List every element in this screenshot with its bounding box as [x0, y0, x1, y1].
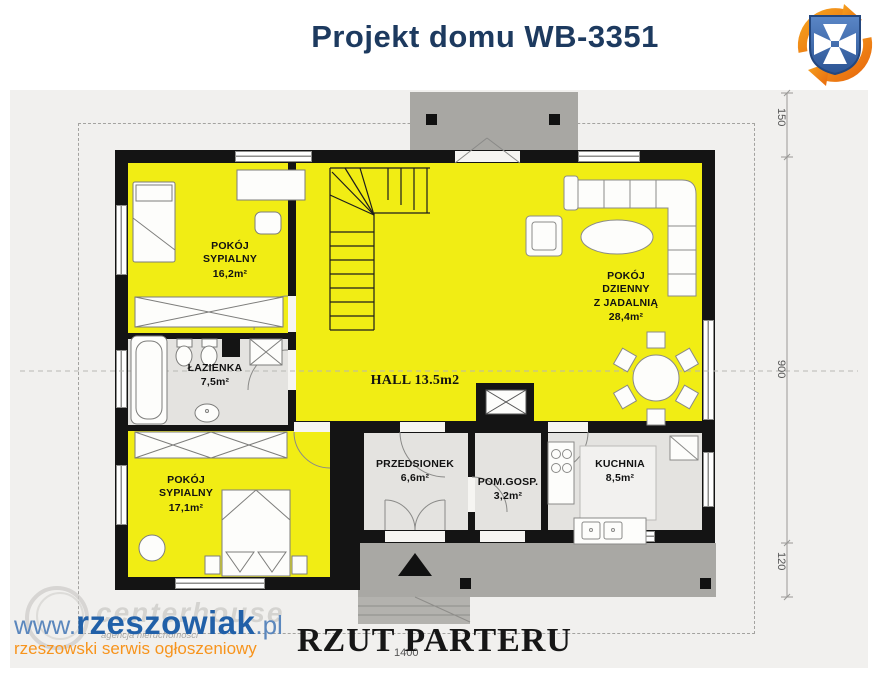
watermark-brand: rzeszowiak — [76, 604, 255, 642]
room-name: KUCHNIA — [560, 458, 680, 471]
room-name: SYPIALNY — [170, 253, 290, 266]
window-bedroom2-bottom — [175, 578, 265, 589]
room-area: 17,1m² — [126, 502, 246, 515]
floor-plan-page: POKÓJ SYPIALNY 16,2m² ŁAZIENKA 7,5m² POK… — [0, 0, 878, 675]
room-area: 16,2m² — [170, 268, 290, 281]
door-kitchen — [548, 422, 588, 432]
dimension-right-900: 900 — [775, 360, 787, 378]
terrace-door-opening — [455, 151, 520, 162]
room-label-kitchen: KUCHNIA 8,5m² — [560, 458, 680, 486]
room-name: POKÓJ — [566, 270, 686, 283]
window-living-right — [703, 320, 714, 420]
watermark-url: www. rzeszowiak .pl — [14, 604, 283, 642]
room-label-bedroom-2: POKÓJ SYPIALNY 17,1m² — [126, 474, 246, 515]
window-kitchen-right — [703, 452, 714, 507]
window-living-top — [578, 151, 640, 162]
terrace-top — [410, 92, 578, 156]
room-name: POKÓJ — [170, 240, 290, 253]
room-name: DZIENNY — [566, 283, 686, 296]
room-name: HALL 13.5m2 — [355, 372, 475, 390]
window-bedroom1-top — [235, 151, 312, 162]
page-title: Projekt domu WB-3351 — [0, 19, 878, 55]
chimney-block — [476, 383, 534, 423]
plan-title: RZUT PARTERU — [297, 622, 572, 660]
door-vestibule-hall — [400, 422, 445, 432]
terrace-entrance — [358, 543, 716, 597]
room-name: Z JADALNIĄ — [566, 297, 686, 310]
watermark-tagline: rzeszowski serwis ogłoszeniowy — [14, 639, 257, 659]
door-bathroom — [288, 350, 296, 390]
utility-door-opening — [480, 531, 525, 542]
rzeszow-crest-logo — [794, 2, 876, 88]
window-bathroom-left — [116, 350, 127, 408]
room-area: 7,5m² — [155, 376, 275, 389]
room-label-bedroom-1: POKÓJ SYPIALNY 16,2m² — [170, 240, 290, 281]
window-bedroom1-left — [116, 205, 127, 275]
room-label-bathroom: ŁAZIENKA 7,5m² — [155, 362, 275, 390]
dimension-right-120: 120 — [775, 552, 787, 570]
door-bedroom1 — [288, 296, 296, 332]
room-name: POM.GOSP. — [448, 476, 568, 489]
watermark-url-prefix: www. — [14, 610, 76, 641]
watermark-url-suffix: .pl — [255, 610, 282, 641]
entrance-steps — [358, 597, 470, 624]
room-label-hall: HALL 13.5m2 — [355, 372, 475, 390]
crest-logo-icon — [794, 2, 876, 88]
bathroom-wall-stub — [222, 333, 240, 357]
room-label-utility: POM.GOSP. 3,2m² — [448, 476, 568, 504]
room-name: ŁAZIENKA — [155, 362, 275, 375]
room-name: PRZEDSIONEK — [355, 458, 475, 471]
room-area: 8,5m² — [560, 472, 680, 485]
room-name: SYPIALNY — [126, 487, 246, 500]
room-name: POKÓJ — [126, 474, 246, 487]
door-bedroom2 — [294, 422, 330, 432]
room-area: 28,4m² — [566, 311, 686, 324]
room-label-living-dining: POKÓJ DZIENNY Z JADALNIĄ 28,4m² — [566, 270, 686, 325]
room-area: 3,2m² — [448, 490, 568, 503]
entrance-door-opening — [385, 531, 445, 542]
window-kitchen-bottom — [595, 531, 655, 542]
dimension-right-150: 150 — [775, 108, 787, 126]
